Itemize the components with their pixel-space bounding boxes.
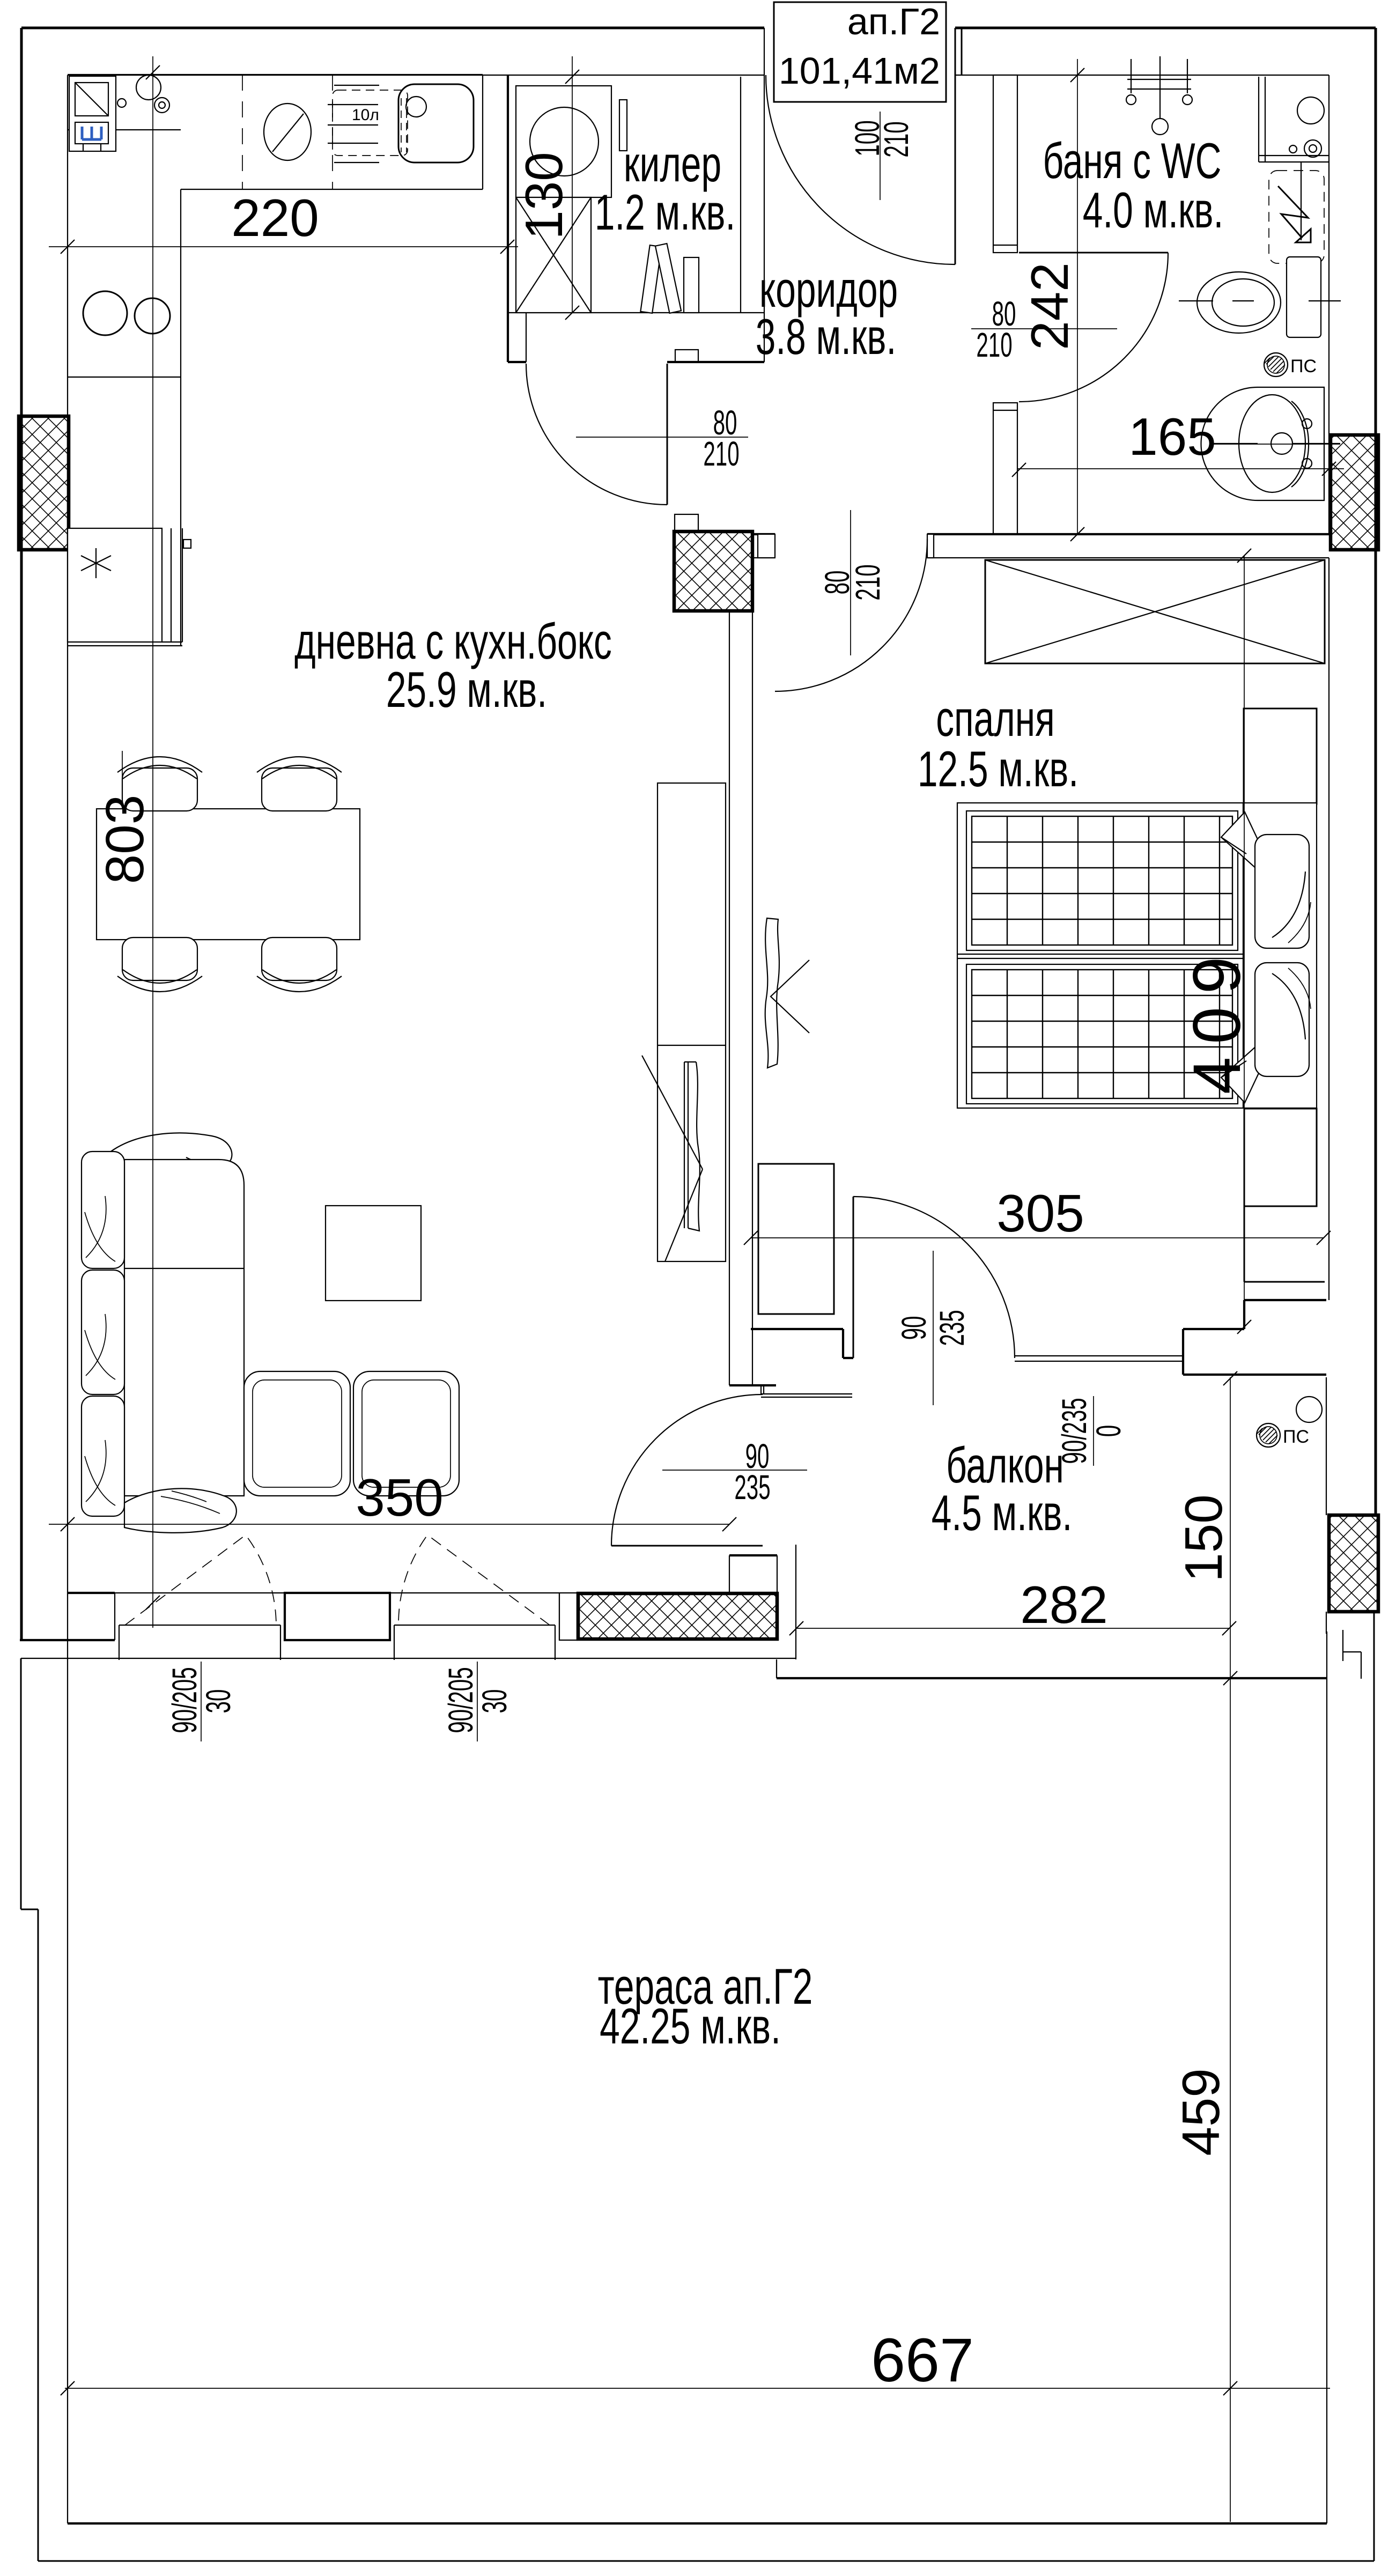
svg-text:4.5 м.кв.: 4.5 м.кв. <box>932 1485 1073 1541</box>
svg-text:ПС: ПС <box>1290 356 1317 377</box>
svg-text:25.9 м.кв.: 25.9 м.кв. <box>386 662 547 718</box>
svg-text:баня с WC: баня с WC <box>1043 133 1221 189</box>
svg-text:спалня: спалня <box>936 691 1055 747</box>
svg-text:235: 235 <box>734 1469 770 1507</box>
svg-text:ПС: ПС <box>1283 1427 1309 1447</box>
svg-text:210: 210 <box>976 327 1012 365</box>
svg-text:220: 220 <box>231 188 319 247</box>
svg-text:305: 305 <box>996 1184 1084 1243</box>
svg-text:242: 242 <box>1020 262 1079 350</box>
svg-text:90/205: 90/205 <box>442 1667 481 1733</box>
svg-text:150: 150 <box>1174 1494 1233 1582</box>
svg-text:ап.Г2: ап.Г2 <box>847 1 940 42</box>
svg-text:210: 210 <box>850 564 888 600</box>
svg-text:4.0 м.кв.: 4.0 м.кв. <box>1083 182 1224 238</box>
svg-text:130: 130 <box>514 152 573 240</box>
svg-text:0: 0 <box>1090 1425 1128 1437</box>
svg-text:12.5 м.кв.: 12.5 м.кв. <box>918 741 1079 797</box>
svg-text:667: 667 <box>871 2326 974 2395</box>
svg-text:90: 90 <box>896 1316 934 1340</box>
svg-text:409: 409 <box>1180 944 1254 1095</box>
svg-text:165: 165 <box>1128 407 1216 466</box>
svg-text:килер: килер <box>624 136 721 192</box>
svg-text:3.8 м.кв.: 3.8 м.кв. <box>756 309 897 365</box>
svg-text:90/205: 90/205 <box>166 1667 204 1733</box>
svg-text:42.25 м.кв.: 42.25 м.кв. <box>600 1998 781 2054</box>
svg-text:дневна с кухн.бокс: дневна с кухн.бокс <box>294 614 612 669</box>
svg-text:350: 350 <box>356 1468 444 1527</box>
svg-text:282: 282 <box>1020 1575 1108 1634</box>
svg-text:235: 235 <box>934 1310 972 1346</box>
svg-text:10л: 10л <box>352 106 379 124</box>
svg-text:1.2 м.кв.: 1.2 м.кв. <box>595 184 736 240</box>
svg-text:459: 459 <box>1171 2068 1230 2156</box>
svg-text:101,41м2: 101,41м2 <box>779 50 940 92</box>
svg-text:803: 803 <box>95 795 155 884</box>
svg-text:210: 210 <box>878 121 916 157</box>
svg-text:30: 30 <box>200 1689 238 1714</box>
svg-text:210: 210 <box>703 436 739 474</box>
svg-text:30: 30 <box>476 1689 514 1714</box>
